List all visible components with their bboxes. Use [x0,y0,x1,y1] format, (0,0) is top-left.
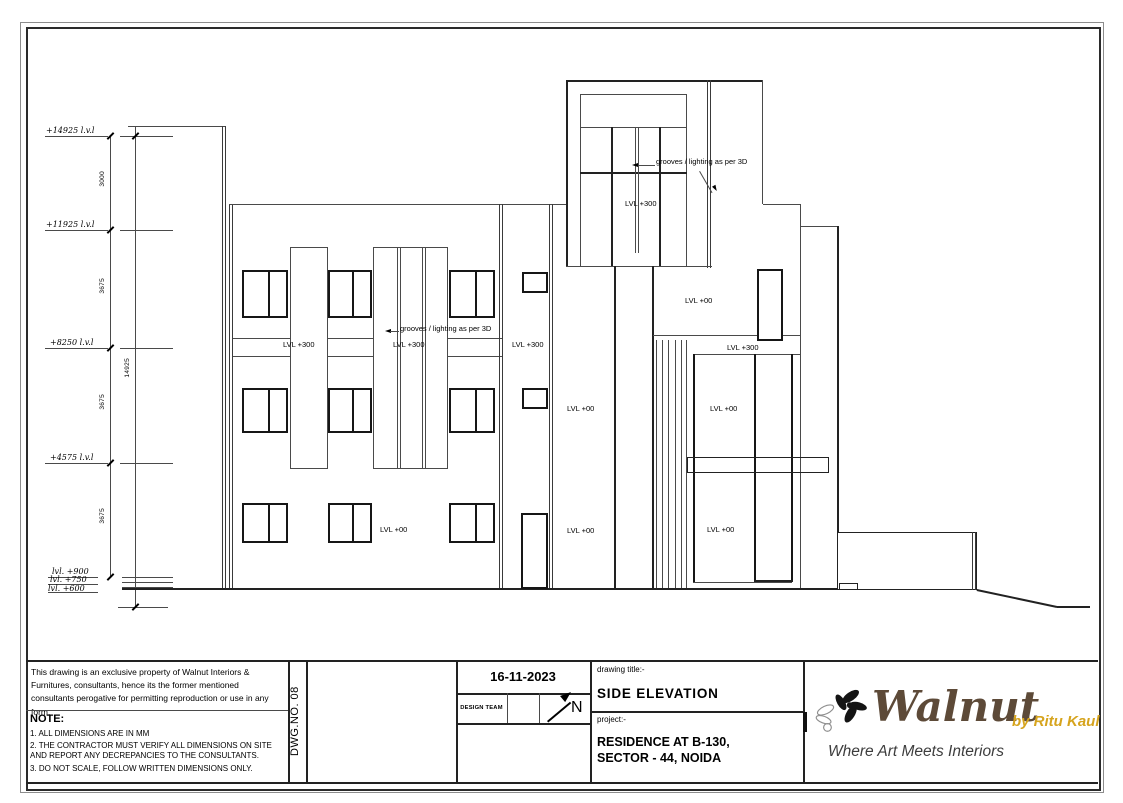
window [328,503,372,543]
brand-byline: by Ritu Kaul [1012,714,1100,729]
dimension-line-overall [135,126,136,607]
window [242,270,288,318]
north-letter: N [571,700,583,716]
groove-line [425,247,426,468]
groove-line [638,127,639,253]
slat [681,340,682,588]
level-tag: LVL +00 [380,526,407,534]
slat [662,340,663,588]
note-heading: NOTE: [30,713,64,725]
dwg-number: DWG.NO. 08 [289,662,305,780]
dimension-line [110,136,111,577]
note-item: 2. THE CONTRACTOR MUST VERIFY ALL DIMENS… [30,741,280,761]
grooves-note: grooves / lighting as per 3D [656,158,747,166]
canopy-slab [687,457,829,473]
level-tag: LVL +00 [567,405,594,413]
note-item: 1. ALL DIMENSIONS ARE IN MM [30,729,280,739]
walnut-flower-icon [812,684,870,736]
narrow-window [757,269,783,341]
level-tag: LVL +300 [727,344,759,352]
slat [668,340,669,588]
project-line1: RESIDENCE AT B-130, [597,735,730,749]
dim-text: 3675 [100,278,107,294]
small-window [522,388,548,409]
level-label: +4575 l.v.l [50,454,93,462]
groove-line [422,247,423,468]
drawing-sheet: +14925 l.v.l +11925 l.v.l +8250 l.v.l +4… [0,0,1123,803]
window [449,503,495,543]
mullion [611,127,613,266]
groove-line [400,247,401,468]
dim-text: 3000 [100,171,107,187]
logo-crop-mark [803,712,807,732]
level-tag: LVL +00 [567,527,594,535]
groove-line [635,127,636,253]
window [328,270,372,318]
window [242,503,288,543]
project-label: project:- [597,716,626,724]
brand-tagline: Where Art Meets Interiors [828,744,1004,760]
project-line2: SECTOR - 44, NOIDA [597,751,721,765]
grooves-note: grooves / lighting as per 3D [400,325,491,333]
level-label: +11925 l.v.l [46,221,94,229]
level-tag: LVL +300 [283,341,315,349]
dim-text: 3675 [100,508,107,524]
side-wall [222,126,226,588]
ground-line [122,588,858,590]
level-tag: LVL +00 [707,526,734,534]
design-team-label: DESIGN TEAM [456,705,507,711]
note-item: 3. DO NOT SCALE, FOLLOW WRITTEN DIMENSIO… [30,764,280,774]
mullion [659,127,661,266]
window [449,270,495,318]
window [328,388,372,433]
date: 16-11-2023 [456,669,590,684]
level-tag: LVL +00 [685,297,712,305]
window [242,388,288,433]
small-window [522,272,548,293]
dim-text-overall: 14925 [125,358,132,378]
level-label: +8250 l.v.l [50,339,93,347]
window [449,388,495,433]
slat [675,340,676,588]
level-label: +14925 l.v.l [46,127,94,135]
drawing-title: SIDE ELEVATION [597,686,719,701]
level-tag: LVL +00 [710,405,737,413]
dim-text: 3675 [100,394,107,410]
door [521,513,548,589]
groove-line [397,247,398,468]
level-tag: LVL +300 [625,200,657,208]
level-label: lvl. +750 [50,576,87,584]
drawing-title-label: drawing title:- [597,666,645,674]
level-tag: LVL +300 [512,341,544,349]
slat [656,340,657,588]
level-tag: LVL +300 [393,341,425,349]
